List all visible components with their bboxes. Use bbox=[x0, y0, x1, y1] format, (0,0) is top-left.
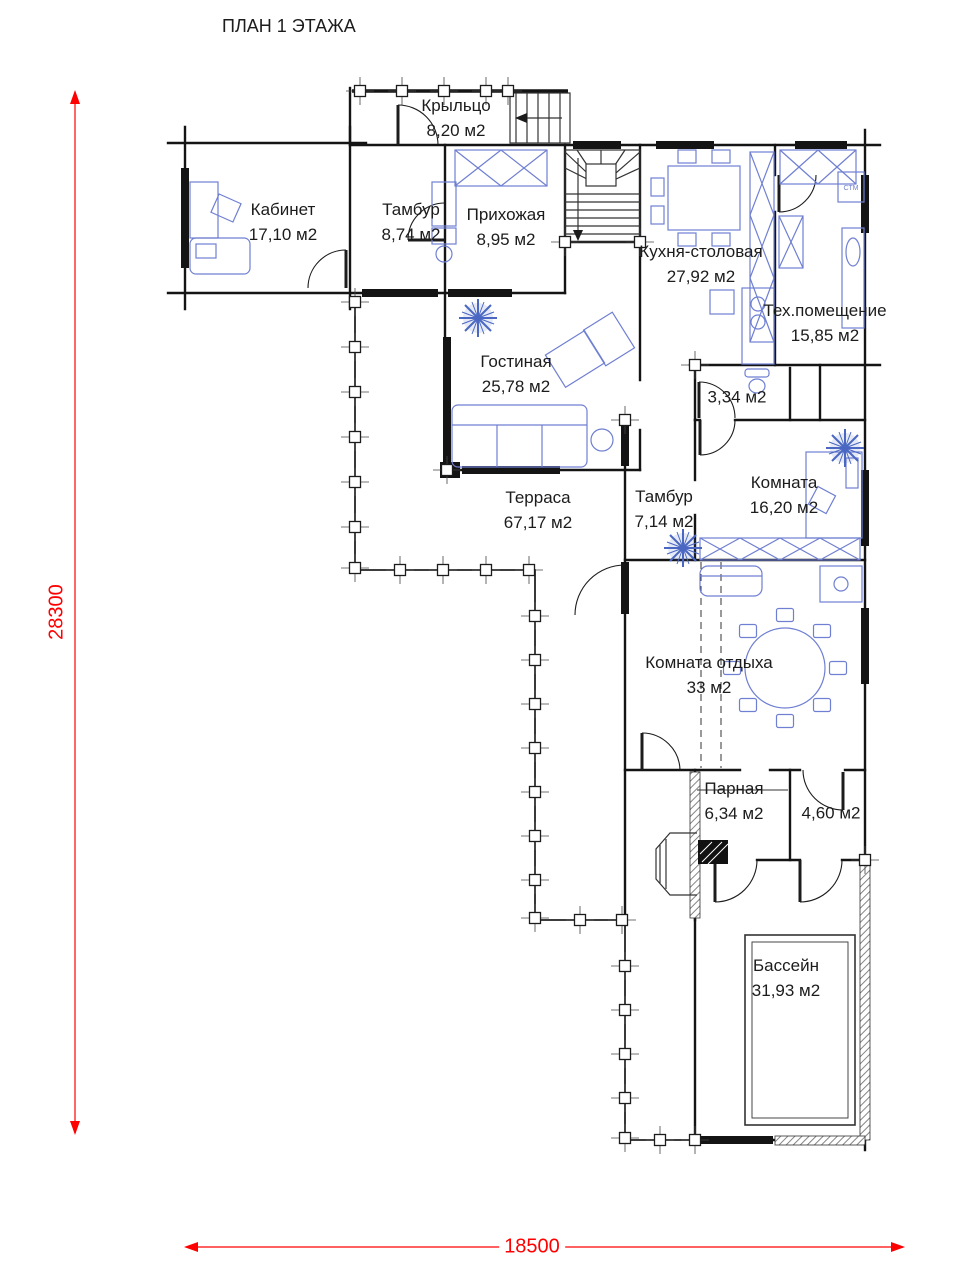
room-name: Гостиная bbox=[480, 352, 551, 371]
floor-plan-drawing: СТМ bbox=[0, 0, 958, 1280]
room-area: 8,20 м2 bbox=[427, 121, 486, 140]
room-label-tambour1: Тамбур 8,74 м2 bbox=[382, 197, 441, 247]
dimension-label-vertical: 28300 bbox=[46, 579, 69, 645]
lounge-couch-icon bbox=[700, 566, 862, 602]
room-area: 16,20 м2 bbox=[750, 498, 818, 517]
room-label-sauna: Парная 6,34 м2 bbox=[704, 776, 763, 826]
room-area: 27,92 м2 bbox=[667, 267, 735, 286]
room-area: 31,93 м2 bbox=[752, 981, 820, 1000]
plan-title: ПЛАН 1 ЭТАЖА bbox=[222, 16, 356, 37]
room-label-room: Комната 16,20 м2 bbox=[750, 470, 818, 520]
room-area: 17,10 м2 bbox=[249, 225, 317, 244]
dimension-label-horizontal: 18500 bbox=[499, 1236, 565, 1259]
room-label-terrace: Терраса 67,17 м2 bbox=[504, 485, 572, 535]
room-label-porch: Крыльцо 8,20 м2 bbox=[421, 93, 490, 143]
sauna-stove-icon bbox=[698, 840, 728, 864]
room-area: 6,34 м2 bbox=[705, 804, 764, 823]
dimension-lines bbox=[70, 90, 905, 1252]
room-name: Бассейн bbox=[753, 956, 819, 975]
room-name: Комната bbox=[751, 473, 818, 492]
room-area: 7,14 м2 bbox=[635, 512, 694, 531]
room-label-living: Гостиная 25,78 м2 bbox=[480, 349, 551, 399]
room-label-tambour2: Тамбур 7,14 м2 bbox=[635, 484, 694, 534]
room-name: Терраса bbox=[505, 488, 570, 507]
room-label-cabinet: Кабинет 17,10 м2 bbox=[249, 197, 317, 247]
room-label-pool: Бассейн 31,93 м2 bbox=[752, 953, 820, 1003]
room-label-wc: 3,34 м2 bbox=[708, 385, 767, 410]
washer-label: СТМ bbox=[844, 185, 859, 192]
room-name: Тамбур bbox=[382, 200, 440, 219]
stairs-icon bbox=[565, 150, 640, 242]
room-name: Прихожая bbox=[467, 205, 546, 224]
floor-plan-page: СТМ ПЛАН 1 ЭТАЖА Крыльцо 8,20 м2 Кабинет… bbox=[0, 0, 958, 1280]
room-area: 3,34 м2 bbox=[708, 388, 767, 407]
room-name: Парная bbox=[704, 779, 763, 798]
room-area: 4,60 м2 bbox=[802, 804, 861, 823]
room-name: Крыльцо bbox=[421, 96, 490, 115]
dining-table-icon bbox=[651, 150, 740, 246]
room-name: Тех.помещение bbox=[763, 301, 886, 320]
room-area: 15,85 м2 bbox=[791, 326, 859, 345]
room-area: 8,95 м2 bbox=[477, 230, 536, 249]
room-name: Кабинет bbox=[251, 200, 316, 219]
room-name: Тамбур bbox=[635, 487, 693, 506]
room-area: 25,78 м2 bbox=[482, 377, 550, 396]
room-name: Кухня-столовая bbox=[639, 242, 762, 261]
room-label-lounge: Комната отдыха 33 м2 bbox=[645, 650, 773, 700]
room-label-tech: Тех.помещение 15,85 м2 bbox=[763, 298, 886, 348]
wardrobe-icon bbox=[455, 150, 547, 186]
terrace-edge bbox=[341, 288, 697, 1154]
room-area: 67,17 м2 bbox=[504, 513, 572, 532]
room-label-kitchen: Кухня-столовая 27,92 м2 bbox=[639, 239, 762, 289]
desk-icon bbox=[190, 182, 250, 274]
room-label-shower: 4,60 м2 bbox=[802, 801, 861, 826]
room-name: Комната отдыха bbox=[645, 653, 773, 672]
room-area: 8,74 м2 bbox=[382, 225, 441, 244]
room-label-hallway: Прихожая 8,95 м2 bbox=[467, 202, 546, 252]
room-area: 33 м2 bbox=[687, 678, 732, 697]
